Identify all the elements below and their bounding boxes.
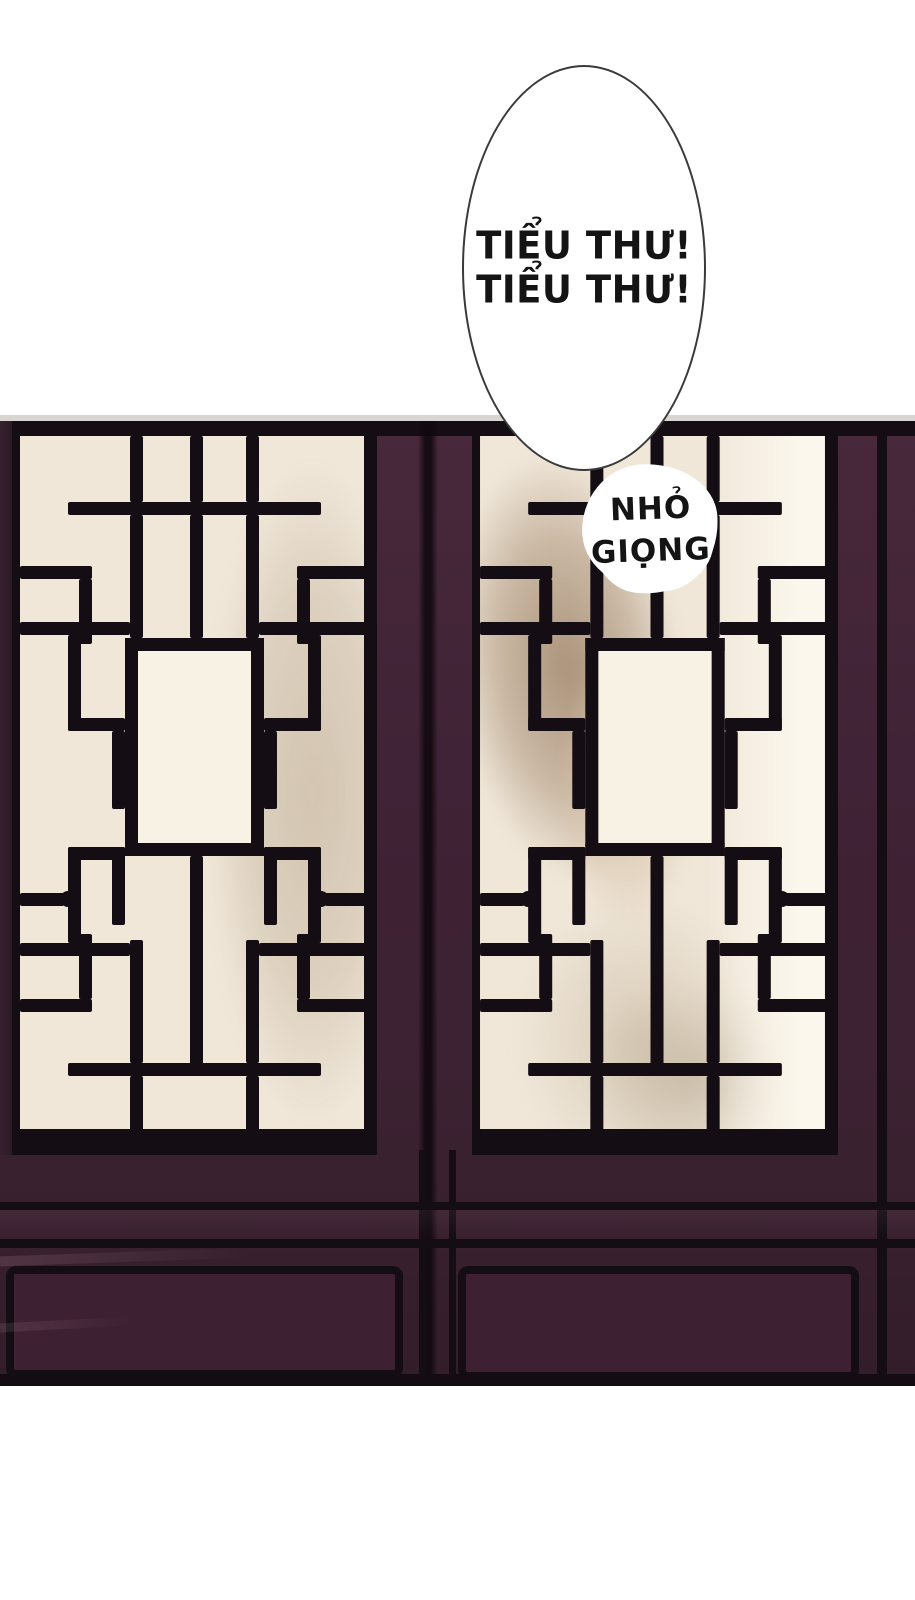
lattice-window-left <box>12 423 377 1155</box>
recessed-panel-right <box>458 1266 859 1380</box>
sfx-text-line-1: NHỎ <box>610 488 693 533</box>
speech-text-line-2: TIỂU THƯ! <box>476 267 692 313</box>
rail-highlight <box>0 1210 915 1239</box>
sfx-text-line-2: GIỌNG <box>590 529 711 575</box>
lattice-grille-left-icon <box>12 423 377 1155</box>
door-left-stile <box>0 421 12 1155</box>
door-gap-line-left <box>419 1150 426 1386</box>
speech-bubble: TIỂU THƯ! TIỂU THƯ! <box>462 65 706 471</box>
door-gap-line-right <box>449 1150 456 1386</box>
rail-groove-lower <box>0 1239 915 1248</box>
bottom-margin <box>0 1386 915 1600</box>
rail-groove-upper <box>0 1202 915 1210</box>
sfx-bubble: NHỎ GIỌNG <box>576 462 726 600</box>
comic-page: NHỎ GIỌNG TIỂU THƯ! TIỂU THƯ! <box>0 0 915 1600</box>
speech-text-line-1: TIỂU THƯ! <box>476 223 692 269</box>
